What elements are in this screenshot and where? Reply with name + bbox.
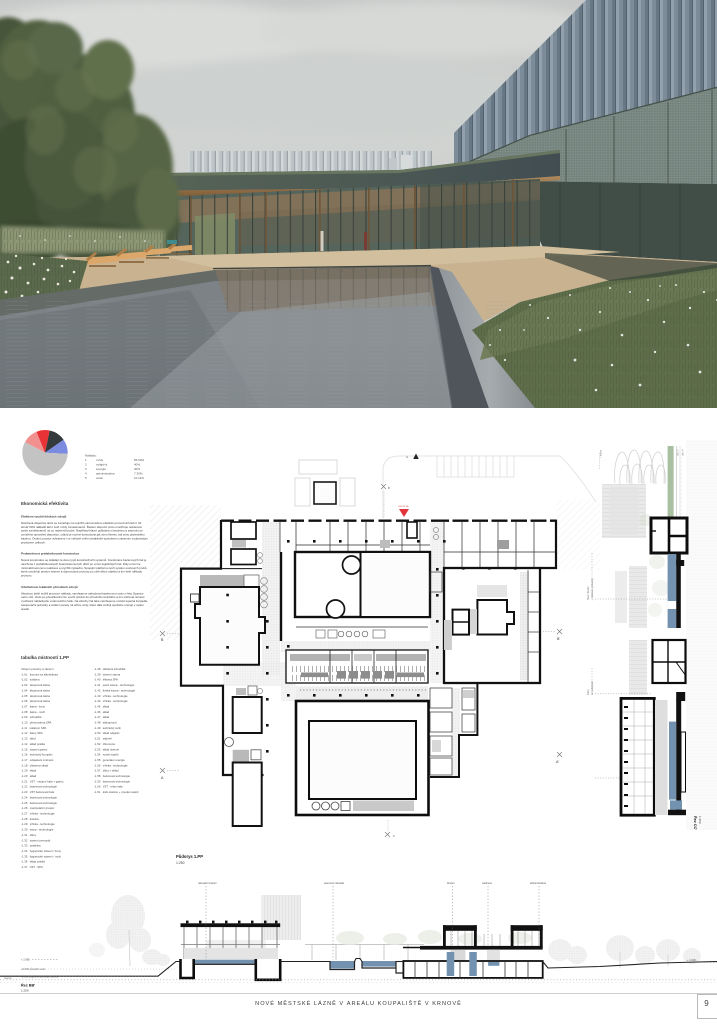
svg-text:+1.000: +1.000 xyxy=(681,449,683,457)
svg-text:-1.000 (zapleněná/nová) hranic: -1.000 (zapleněná/nová) hranice xyxy=(21,975,59,979)
svg-text:+ 2.980: + 2.980 xyxy=(21,958,30,962)
svg-text:+0.000 původní terén: +0.000 původní terén xyxy=(21,967,46,971)
svg-text:B': B' xyxy=(557,637,560,641)
svg-text:A: A xyxy=(161,776,164,780)
svg-text:hlavní bazén: hlavní bazén xyxy=(587,586,590,600)
svg-text:Řez BB': Řez BB' xyxy=(21,983,35,988)
svg-text:+ 1.000: + 1.000 xyxy=(687,958,696,962)
svg-text:c: c xyxy=(393,834,395,838)
svg-text:wellness: wellness xyxy=(482,881,493,885)
svg-text:1:250: 1:250 xyxy=(698,816,702,824)
svg-text:VSTUP HL.: VSTUP HL. xyxy=(398,506,410,508)
svg-text:saunová zahrada: saunová zahrada xyxy=(324,881,344,885)
svg-text:hranice: hranice xyxy=(4,977,13,980)
svg-text:b: b xyxy=(388,486,390,490)
svg-text:šatny: šatny xyxy=(587,688,590,695)
svg-text:fitness: fitness xyxy=(447,881,455,885)
svg-text:administrativa: administrativa xyxy=(530,881,547,885)
svg-text:A: A xyxy=(406,455,408,459)
svg-text:56059 +: 56059 + xyxy=(599,450,601,459)
svg-text:od veřejnosti: od veřejnosti xyxy=(591,681,594,695)
svg-text:Řez CC': Řez CC' xyxy=(693,816,698,830)
svg-text:+ relaxace, plavecký: + relaxace, plavecký xyxy=(591,577,594,600)
svg-text:+7.000: +7.000 xyxy=(676,449,678,457)
svg-text:A': A' xyxy=(556,760,559,764)
svg-text:rekreační bazén: rekreační bazén xyxy=(198,881,217,885)
